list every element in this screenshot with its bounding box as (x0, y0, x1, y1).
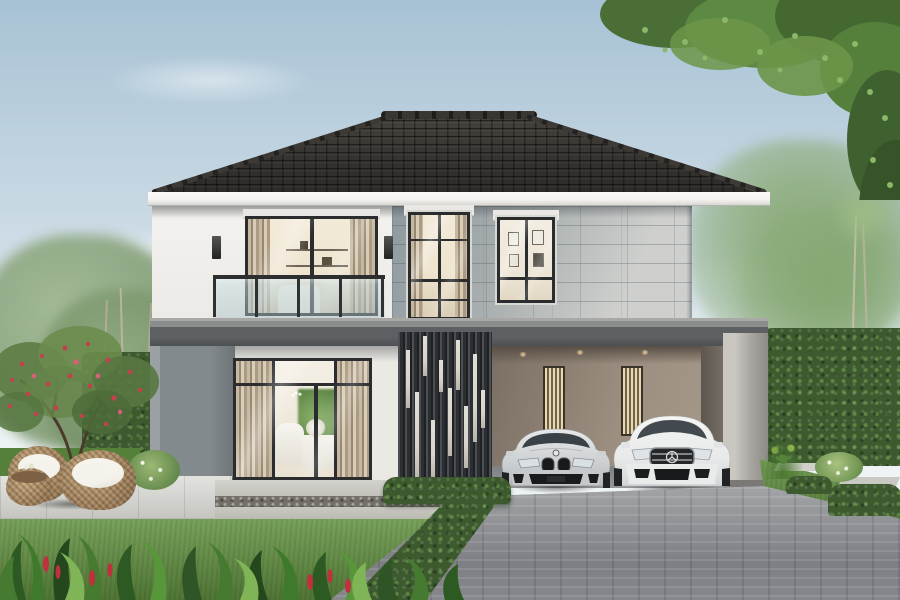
living-room-window (233, 358, 372, 480)
slat-accent (406, 350, 410, 408)
carport-downlight (576, 350, 584, 355)
bmw-headlight (518, 458, 540, 468)
slat-accent (448, 388, 452, 456)
slat-accent (464, 406, 468, 468)
glass-reflection (411, 215, 467, 317)
tree-foliage (0, 326, 159, 434)
wall-sconce-light (212, 236, 221, 259)
trimmed-hedge-bottom-right (828, 484, 900, 516)
rattan-side-table (6, 468, 52, 506)
slat-accent (481, 390, 485, 428)
slat-accent (431, 420, 435, 478)
cloud (60, 45, 360, 115)
mercedes-mirror (621, 442, 630, 448)
slat-accent (415, 392, 419, 484)
railing-posts (213, 279, 385, 317)
overhanging-tree-canopy (555, 0, 900, 200)
architectural-render-scene (0, 0, 900, 600)
rattan-egg-chair (60, 450, 136, 510)
slat-screen (398, 332, 492, 492)
mercedes-side-intake (634, 469, 650, 478)
slat-accent (423, 336, 427, 376)
slat-accent (473, 354, 477, 442)
table-decor-flowers (20, 462, 36, 472)
stone-corner-shade (686, 206, 692, 320)
wall-sconce-light (384, 236, 393, 259)
mercedes-side-intake (694, 469, 710, 478)
bmw-roundel-icon (553, 450, 559, 456)
glass-reflection (500, 220, 552, 300)
slat-accent (456, 340, 460, 390)
bmw-mirror (598, 451, 606, 456)
trimmed-hedge-small (786, 476, 832, 494)
bmw-kidney-grille (558, 458, 570, 472)
tall-grid-window (408, 212, 470, 320)
carport-downlight (519, 352, 527, 357)
roof-ridge-caps (381, 111, 537, 119)
foreground-plants (0, 512, 480, 600)
bmw-mirror (506, 451, 514, 456)
picture-window (497, 217, 555, 303)
carport-downlight (641, 350, 649, 355)
mercedes-mirror (714, 442, 723, 448)
table-top (11, 471, 47, 483)
bmw-headlight (572, 458, 594, 468)
glass-reflection (236, 361, 369, 477)
bird-of-paradise-plant (763, 435, 803, 479)
slat-accent (439, 360, 443, 392)
